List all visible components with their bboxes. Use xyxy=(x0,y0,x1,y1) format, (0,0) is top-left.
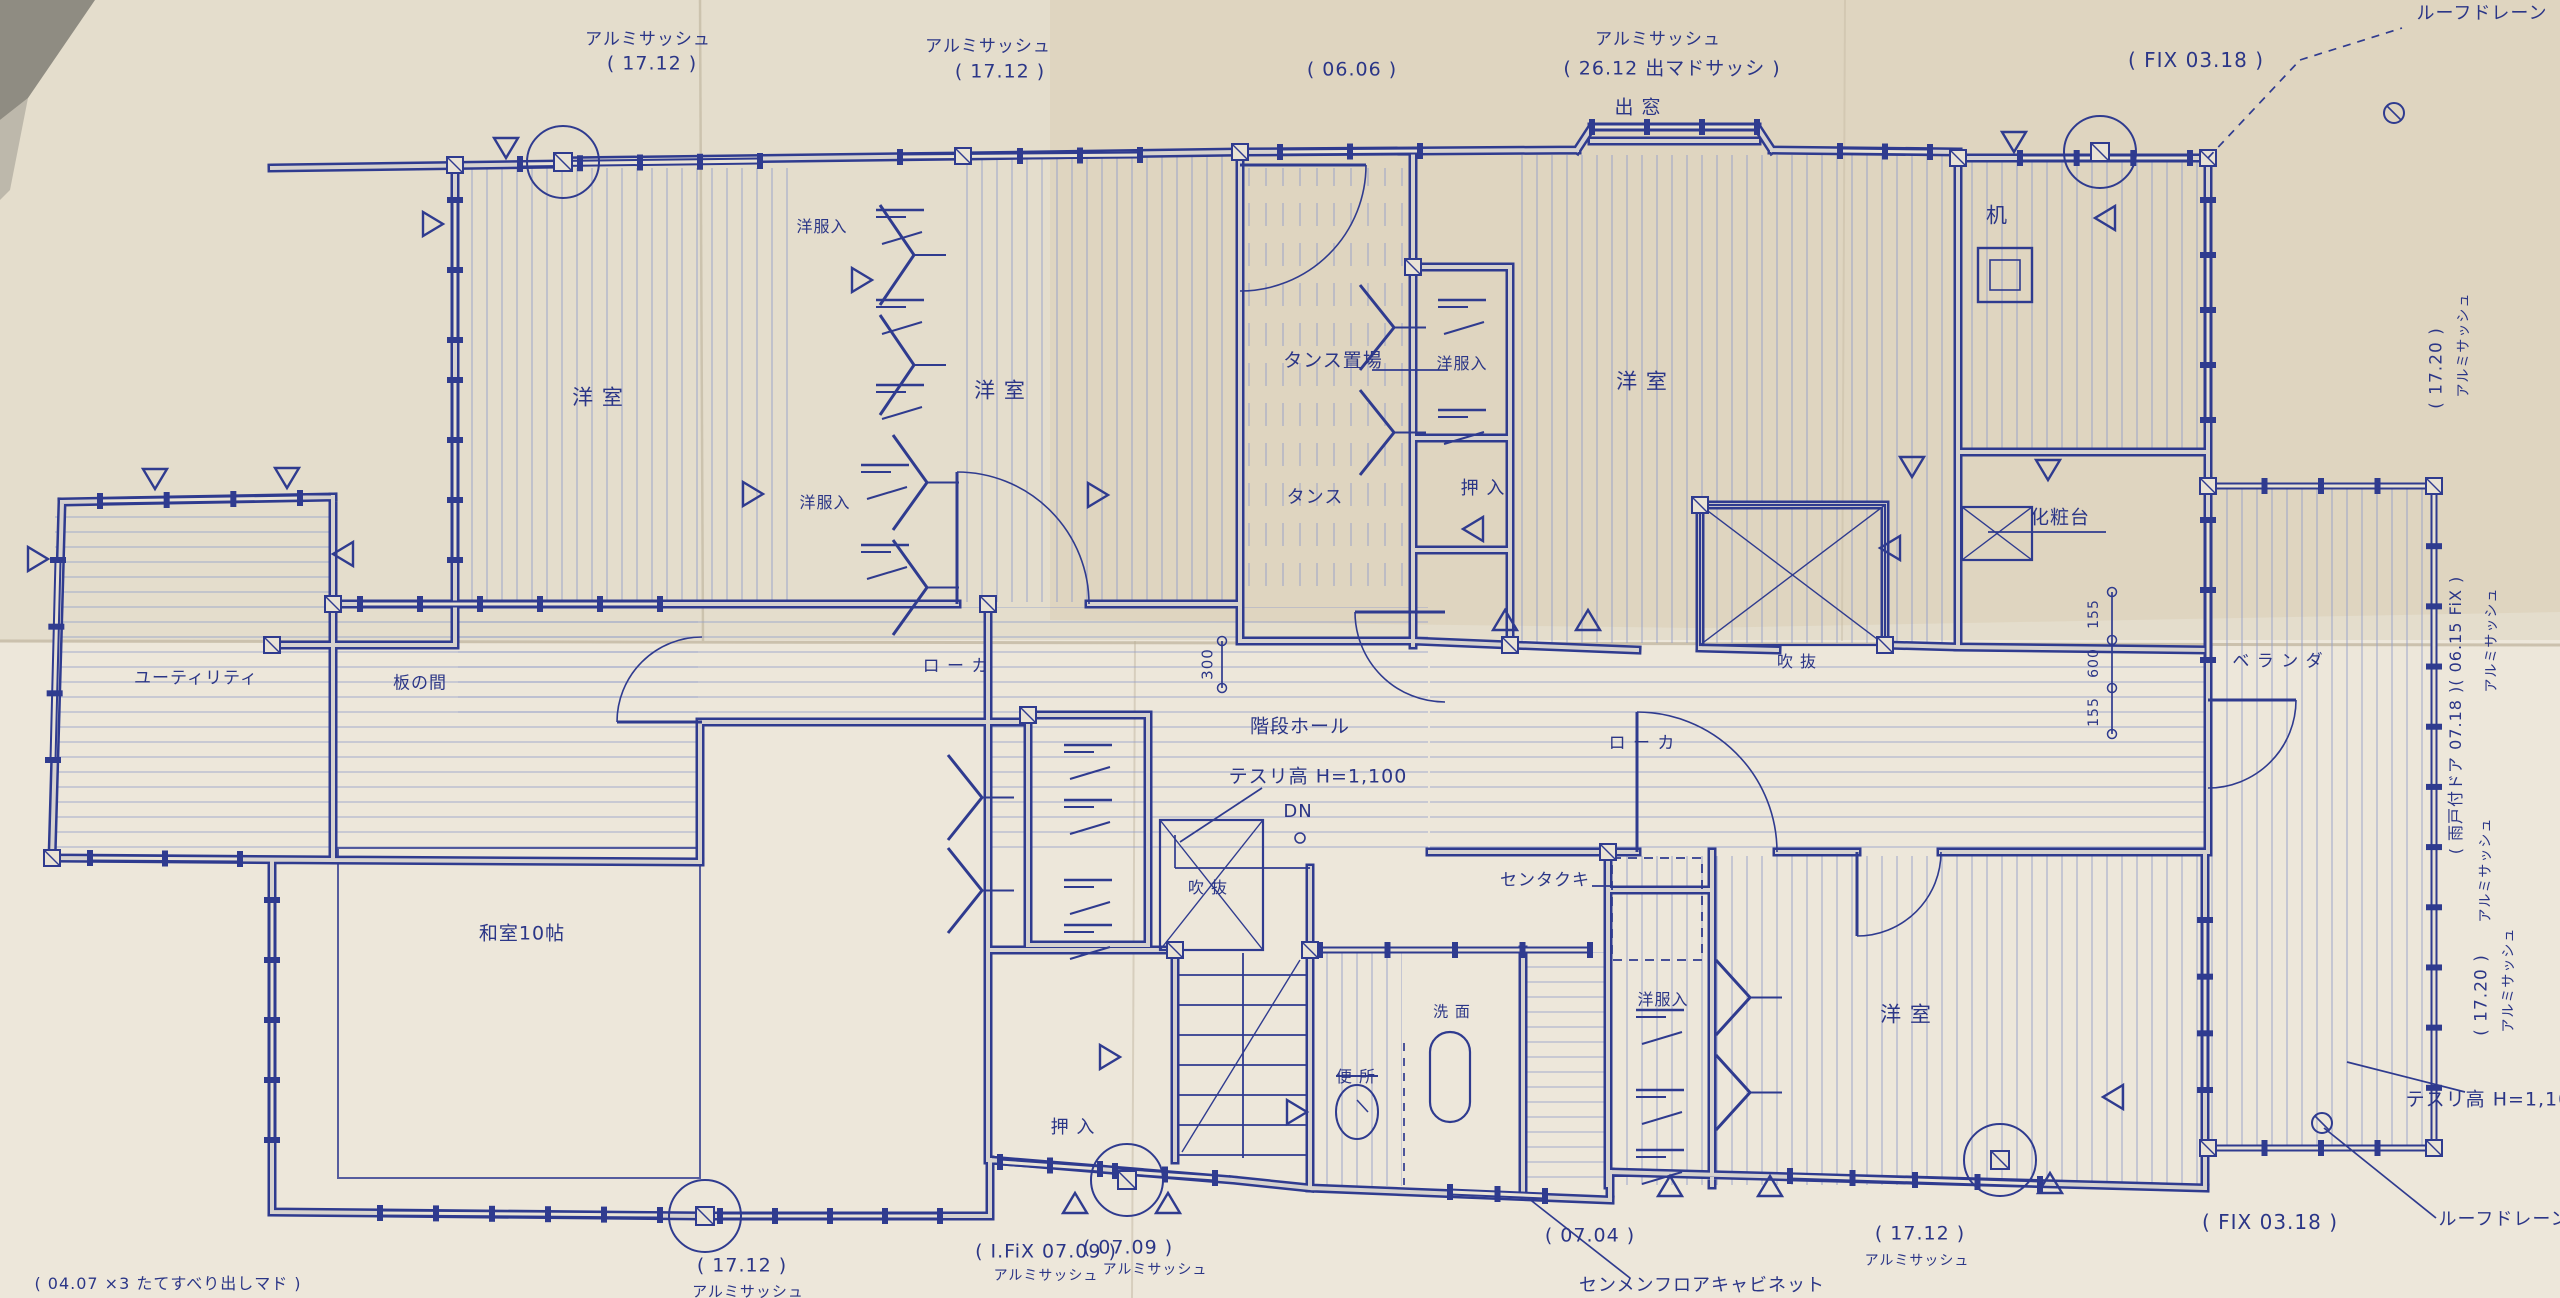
fixture-keshodai: 化粧台 xyxy=(2030,509,2090,528)
fixture-sentakuki: センタクキ xyxy=(1500,873,1590,890)
room-itanoma: 板の間 xyxy=(393,676,447,693)
window-size-17-20-b: ( 17.20 ) xyxy=(2474,954,2491,1036)
floorplan-scan: アルミサッシュ( 17.12 )アルミサッシュ( 17.12 )( 06.06 … xyxy=(0,0,2560,1298)
window-label-alum-bay: アルミサッシュ xyxy=(1595,32,1721,49)
room-demado: 出 窓 xyxy=(1614,99,1661,118)
window-size-07-04: ( 07.04 ) xyxy=(1545,1227,1635,1246)
window-label-alum-r1: アルミサッシュ xyxy=(2457,293,2471,398)
dim-155-a: 155 xyxy=(2087,599,2101,629)
dim-155-b: 155 xyxy=(2087,697,2101,727)
window-size-26-12-bay: ( 26.12 出マドサッシ ) xyxy=(1563,60,1780,79)
window-label-alum-b4: アルミサッシュ xyxy=(1865,1254,1970,1268)
window-size-17-12-c: ( 17.12 ) xyxy=(697,1257,787,1276)
handrail-note-center: テスリ高 H=1,100 xyxy=(1229,768,1408,787)
window-size-04-07: ( 04.07 ×3 たてすべり出しマド ) xyxy=(34,1276,301,1292)
window-label-alum-b1: アルミサッシュ xyxy=(692,1285,804,1298)
room-utility: ユーティリティ xyxy=(134,671,258,688)
window-label-alum-r2: アルミサッシュ xyxy=(2485,588,2499,693)
void-fukinuke-right: 吹 抜 xyxy=(1777,654,1817,670)
handrail-note-right: テスリ高 H=1,100 xyxy=(2406,1091,2560,1110)
window-size-17-12-b: ( 17.12 ) xyxy=(955,63,1045,82)
closet-yofukuire-1: 洋服入 xyxy=(796,219,847,235)
closet-oshiire-bottom: 押 入 xyxy=(1051,1119,1096,1137)
window-label-alum-r3: アルミサッシュ xyxy=(2479,818,2493,923)
dim-600: 600 xyxy=(2087,648,2101,678)
window-size-amado-fix: ( 雨戸付ドア 07.18 )( 06.15 FiX ) xyxy=(2448,576,2464,855)
roof-drain-top: ルーフドレーン xyxy=(2416,5,2547,23)
window-size-06-06: ( 06.06 ) xyxy=(1307,61,1397,80)
fixture-senmen-cabinet: センメンフロアキャビネット xyxy=(1579,1277,1825,1295)
area-tansu: タンス xyxy=(1287,489,1344,507)
stair-dn: DN xyxy=(1283,803,1312,821)
closet-yofukuire-3: 洋服入 xyxy=(1436,356,1487,372)
closet-yofukuire-4: 洋服入 xyxy=(1637,992,1688,1008)
room-kaidan-hall: 階段ホール xyxy=(1250,718,1350,737)
room-roka-left: ロ ー カ xyxy=(923,659,990,676)
room-yoshitsu-br: 洋 室 xyxy=(1880,1005,1932,1026)
floorplan-drawing xyxy=(0,0,2560,1298)
room-veranda: ベ ラ ン ダ xyxy=(2232,654,2323,671)
room-washitsu-10: 和室10帖 xyxy=(479,925,565,944)
room-senmen: 洗 面 xyxy=(1433,1005,1471,1020)
fixture-tsukue: 机 xyxy=(1986,206,2008,227)
room-benjo: 便 所 xyxy=(1336,1069,1376,1085)
roof-drain-bottom: ルーフドレーン xyxy=(2438,1211,2560,1229)
window-label-alum-t1: アルミサッシュ xyxy=(585,32,711,49)
window-label-alum-t2: アルミサッシュ xyxy=(925,39,1051,56)
window-label-alum-b3: アルミサッシュ xyxy=(1103,1263,1208,1277)
window-label-alum-r4: アルミサッシュ xyxy=(2502,928,2516,1033)
room-yoshitsu-mid: 洋 室 xyxy=(974,381,1026,402)
window-size-17-12-a: ( 17.12 ) xyxy=(607,55,697,74)
window-size-07-09: ( 07.09 ) xyxy=(1083,1239,1173,1258)
room-yoshitsu-right: 洋 室 xyxy=(1616,372,1668,393)
dim-300: 300 xyxy=(1201,648,1216,680)
window-size-fix-03-18-top: ( FIX 03.18 ) xyxy=(2128,50,2264,70)
window-size-fix-03-18-bottom: ( FIX 03.18 ) xyxy=(2202,1212,2338,1232)
room-yoshitsu-left: 洋 室 xyxy=(572,388,624,409)
window-size-17-20-a: ( 17.20 ) xyxy=(2429,327,2446,409)
room-roka-right: ロ ー カ xyxy=(1609,736,1676,753)
closet-oshiire-top: 押 入 xyxy=(1461,480,1506,498)
closet-yofukuire-2: 洋服入 xyxy=(799,495,850,511)
window-label-alum-b2: アルミサッシュ xyxy=(994,1269,1099,1283)
area-tansu-okiba: タンス置場 xyxy=(1283,352,1383,371)
void-fukinuke-left: 吹 抜 xyxy=(1188,880,1228,896)
window-size-17-12-d: ( 17.12 ) xyxy=(1875,1225,1965,1244)
